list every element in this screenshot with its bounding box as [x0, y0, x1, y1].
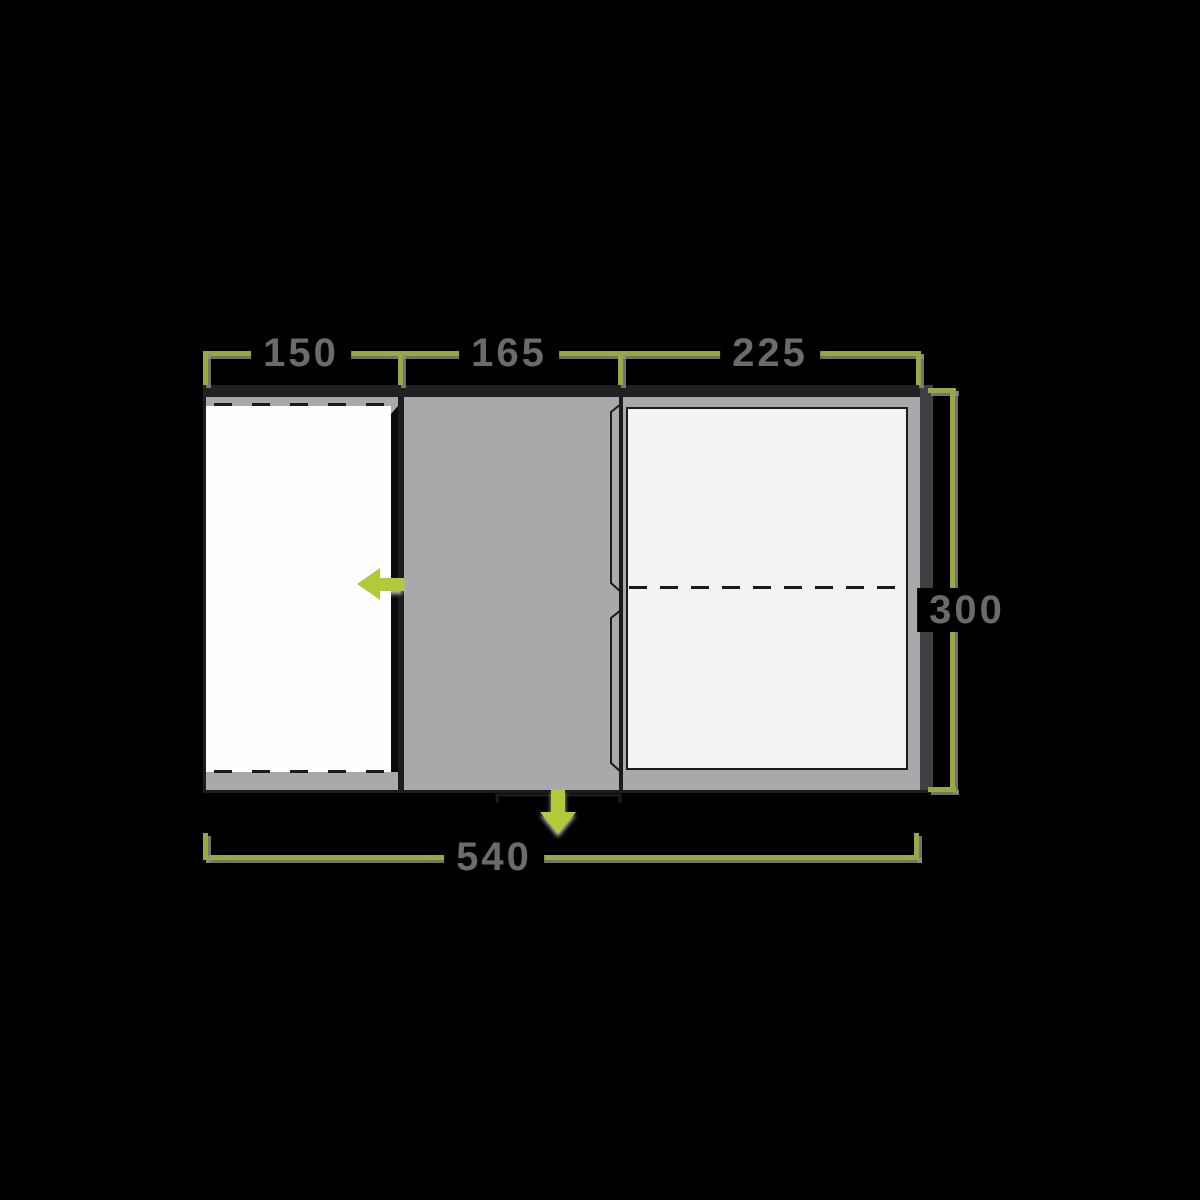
dimension-line-bottom: [203, 855, 919, 860]
dimension-label-225: 225: [720, 331, 820, 375]
annex-entrance-arrow-left-icon: [357, 568, 404, 600]
inner-wall-right: [619, 397, 623, 790]
front-wall-bar: [203, 385, 920, 397]
dimension-label-150: 150: [251, 331, 351, 375]
dimension-label-540: 540: [444, 835, 544, 879]
main-entrance-arrow-down-icon: [540, 790, 576, 834]
arrow-left-head: [357, 568, 380, 600]
bed-divider-dashed-line: [629, 586, 906, 589]
arrow-left-shaft: [379, 578, 404, 591]
floorplan-canvas: 150 165 225 300 540: [0, 0, 1200, 1200]
dimension-tick-bottom-left: [203, 833, 208, 860]
annex-dashed-line-top: [206, 403, 395, 406]
dimension-label-165: 165: [459, 331, 559, 375]
arrow-down-head: [540, 812, 576, 834]
annex-dashed-line-bottom: [206, 770, 395, 773]
dimension-tick-165-225: [618, 351, 623, 385]
dimension-label-300: 300: [917, 588, 1017, 632]
dimension-tick-bottom-right: [914, 833, 919, 860]
dimension-tick-150-165: [398, 351, 403, 385]
arrow-down-shaft: [551, 790, 565, 814]
dimension-line-right-bottom: [928, 787, 956, 792]
dimension-tick-right: [916, 351, 921, 385]
dimension-tick-left: [203, 351, 208, 385]
